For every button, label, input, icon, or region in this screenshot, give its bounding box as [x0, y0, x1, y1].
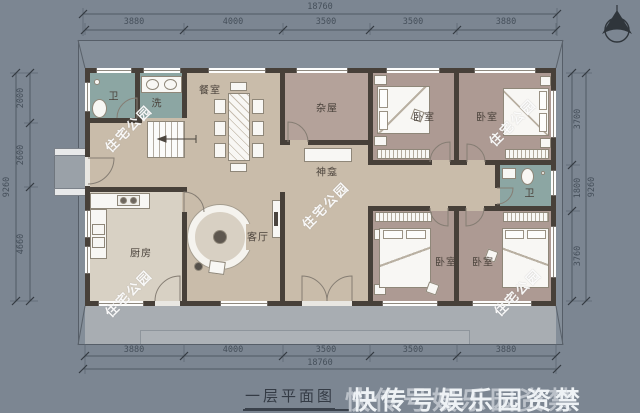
door-arc	[88, 158, 114, 184]
label-bedroom-top-right: 卧室	[476, 109, 498, 124]
dim-right-seg: 3700	[573, 109, 583, 129]
dim-bottom-seg: 4000	[223, 345, 243, 355]
door-arc	[184, 192, 204, 212]
door-arc	[302, 276, 327, 301]
label-shrine: 神龛	[316, 164, 338, 179]
north-arrow-icon	[602, 5, 632, 42]
dim-top-seg: 4000	[223, 17, 243, 27]
label-kitchen: 厨房	[130, 245, 152, 260]
label-bedroom-top-mid: 卧室	[413, 109, 435, 124]
label-bath-left: 卫	[109, 88, 120, 103]
dim-top-seg: 3500	[316, 17, 336, 27]
door-arc	[466, 208, 484, 226]
overlay-watermark: 快传号娱乐园资禁	[352, 381, 584, 413]
door-arc	[467, 144, 485, 162]
dim-left-seg: 4660	[16, 234, 26, 254]
door-arc	[430, 142, 450, 162]
dim-bottom-seg: 3500	[316, 345, 336, 355]
dim-left-seg: 2000	[16, 88, 26, 108]
door-arc	[288, 122, 308, 142]
extension-lines	[10, 8, 592, 374]
label-storage: 杂屋	[316, 100, 338, 115]
dim-left-total: 9260	[2, 177, 12, 197]
dim-bottom-seg: 3500	[403, 345, 423, 355]
label-bedroom-bottom-mid: 卧室	[435, 254, 457, 269]
label-dining: 餐室	[199, 82, 221, 97]
dim-bottom-seg: 3880	[124, 345, 144, 355]
label-bedroom-bottom-right: 卧室	[472, 254, 494, 269]
door-arc	[497, 188, 513, 204]
door-arcs	[88, 98, 513, 301]
dim-top-total: 18760	[307, 2, 333, 12]
floor-plan-canvas: 卫 洗 餐室 杂屋 卧室 卧室 神龛 卫 厨房 客厅 卧室 卧室 住宅公园 住宅…	[0, 0, 640, 413]
dim-left-seg: 2600	[16, 145, 26, 165]
label-living: 客厅	[247, 229, 269, 244]
dim-bottom-total: 18760	[307, 358, 333, 368]
dim-right-seg: 3760	[573, 246, 583, 266]
label-bath-right: 卫	[525, 185, 536, 200]
dim-right-seg: 1800	[573, 178, 583, 198]
dim-bottom-seg: 3880	[496, 345, 516, 355]
door-arc	[155, 276, 180, 301]
title-underline	[243, 409, 349, 411]
stairs-arrow-icon	[158, 135, 196, 143]
door-arc	[430, 208, 448, 226]
door-arc	[327, 276, 352, 301]
plan-title: 一层平面图	[245, 385, 335, 410]
dim-top-seg: 3500	[403, 17, 423, 27]
roof-diagonals	[78, 40, 563, 345]
dim-right-total: 9260	[587, 177, 597, 197]
label-laundry: 洗	[152, 95, 163, 110]
dim-top-seg: 3880	[124, 17, 144, 27]
dim-top-seg: 3880	[496, 17, 516, 27]
